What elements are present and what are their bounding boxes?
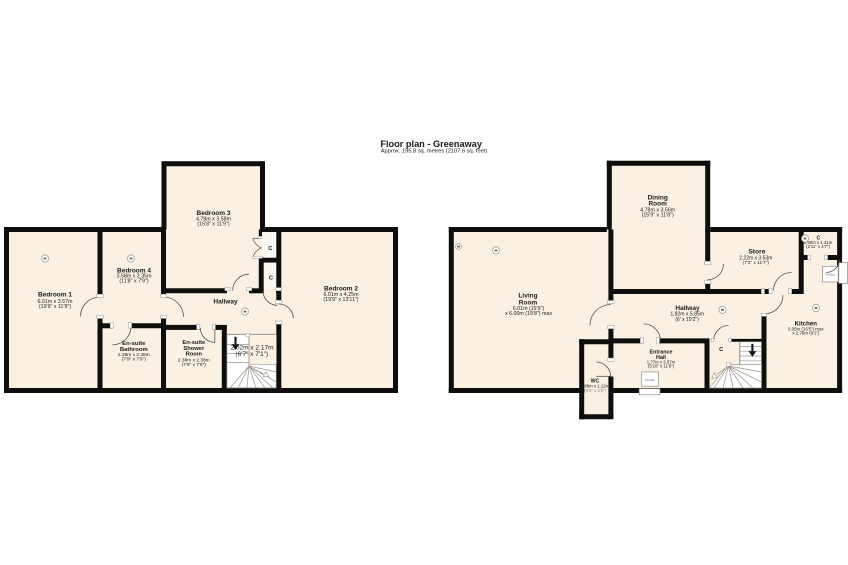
svg-text:(15'8" x 11'9"): (15'8" x 11'9") [197, 222, 229, 228]
svg-text:(7'9" x 7'9"): (7'9" x 7'9") [122, 356, 147, 362]
svg-text:Fire Esc: Fire Esc [825, 272, 836, 276]
svg-text:(7'9" x 7'9"): (7'9" x 7'9") [182, 362, 207, 368]
svg-text:Room: Room [648, 201, 667, 208]
svg-text:x 2.76m (9'1"): x 2.76m (9'1") [792, 331, 820, 336]
svg-text:(6'7" x 7'1"): (6'7" x 7'1") [235, 351, 268, 358]
svg-text:(2'11" x 4'7"): (2'11" x 4'7") [806, 244, 830, 249]
svg-text:Hallway: Hallway [213, 299, 238, 306]
svg-text:(6' x 19'2"): (6' x 19'2") [675, 317, 699, 323]
svg-text:Fire Esc: Fire Esc [645, 378, 656, 382]
svg-text:(19'9" x 13'11"): (19'9" x 13'11") [323, 297, 358, 303]
svg-text:(11'8" x 7'9"): (11'8" x 7'9") [119, 279, 148, 285]
svg-text:(5'10" x 11'9"): (5'10" x 11'9") [648, 363, 675, 368]
svg-text:(7'3" x 11'7"): (7'3" x 11'7") [743, 260, 770, 266]
svg-text:(15'9" x 11'8"): (15'9" x 11'8") [642, 213, 674, 219]
svg-text:(19'9" x 11'9"): (19'9" x 11'9") [39, 304, 71, 310]
svg-text:Approx. 195.8 sq. metres (2107: Approx. 195.8 sq. metres (2107.6 sq. fee… [381, 149, 488, 155]
svg-text:(9'5" x 3'8"): (9'5" x 3'8") [584, 388, 606, 393]
svg-text:x 6.00m (19'8") max: x 6.00m (19'8") max [505, 311, 552, 317]
svg-text:Bedroom 1: Bedroom 1 [38, 292, 72, 299]
svg-text:Living: Living [518, 293, 537, 300]
svg-text:Bathroom: Bathroom [120, 347, 148, 353]
svg-text:Floor plan - Greenaway: Floor plan - Greenaway [380, 139, 482, 149]
svg-text:Room: Room [186, 352, 202, 358]
svg-text:Store: Store [748, 248, 765, 255]
